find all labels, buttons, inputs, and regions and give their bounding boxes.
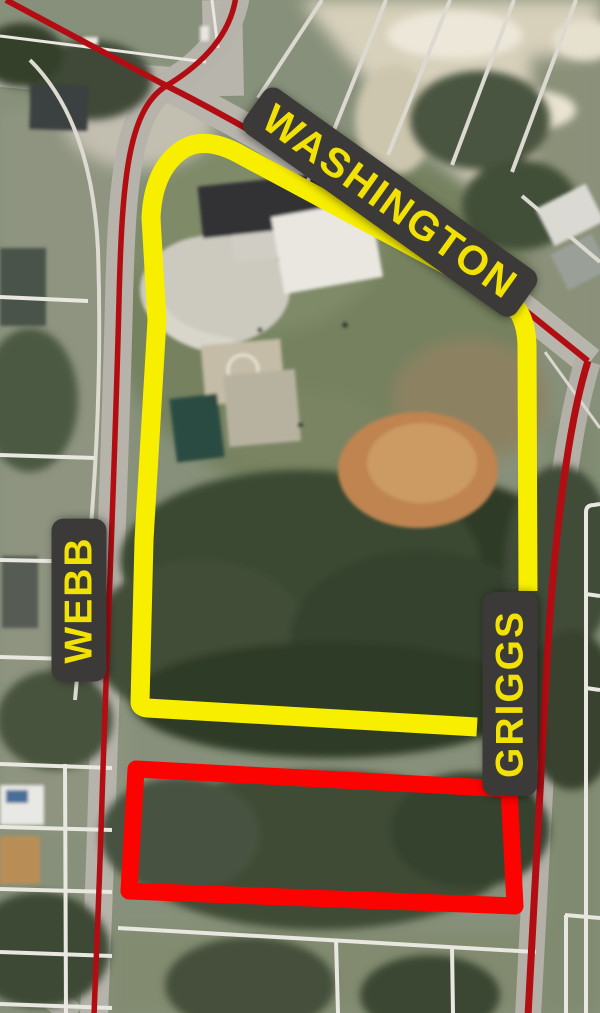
pavilion-roof: [169, 393, 224, 462]
aerial-map: WASHINGTON WEBB GRIGGS: [0, 0, 600, 1013]
street-label-webb: WEBB: [52, 518, 107, 681]
gray-pad: [223, 369, 301, 447]
street-label-griggs: GRIGGS: [483, 592, 538, 796]
